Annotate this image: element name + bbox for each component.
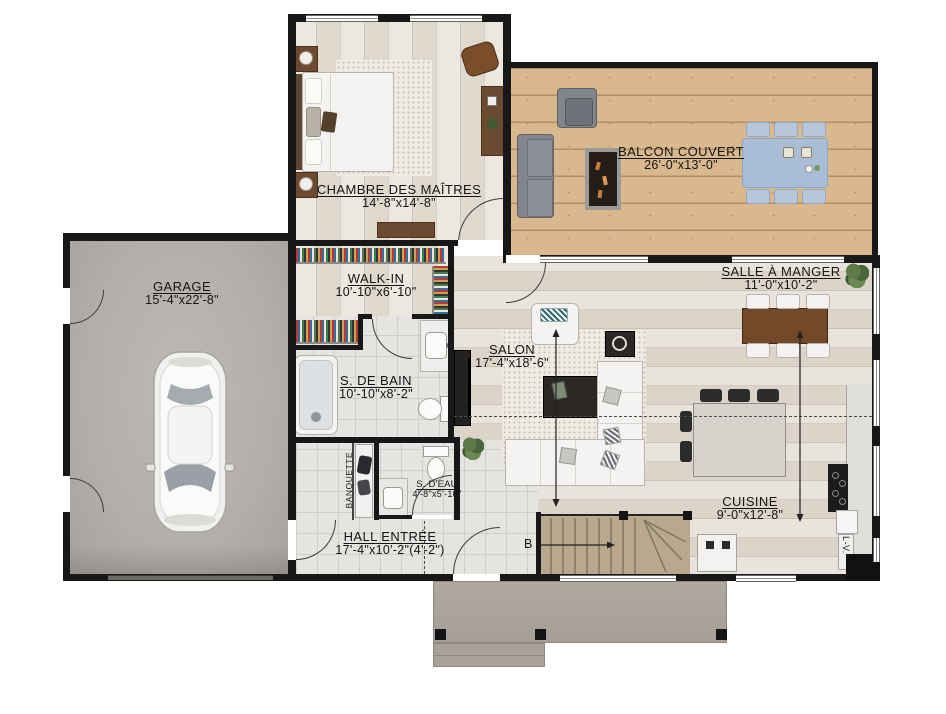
patio-chair <box>774 189 798 204</box>
dining-chair <box>806 343 830 358</box>
porch-post <box>435 629 446 640</box>
room-name: HALL ENTRÉE <box>335 530 444 544</box>
garage-door <box>108 575 273 580</box>
bed-pillow <box>305 78 322 104</box>
front-door-opening <box>453 574 500 581</box>
door-opening <box>506 255 540 263</box>
flame-icon <box>597 190 602 198</box>
window <box>732 256 844 263</box>
dining-chair <box>746 294 770 309</box>
room-name: SALLE À MANGER <box>721 265 840 279</box>
room-dims: 10'-10"x6'-10" <box>335 286 416 300</box>
room-name: S. DE BAIN <box>339 374 413 388</box>
cabinet-handle-icon <box>722 541 730 549</box>
front-porch <box>433 581 727 643</box>
room-name: CUISINE <box>717 495 784 509</box>
burner-icon <box>832 490 839 497</box>
door-opening <box>288 520 296 560</box>
stair-newel-post <box>683 511 692 520</box>
label-chambre-des-maitres: CHAMBRE DES MAÎTRES 14'-8"x14'-8" <box>317 183 481 211</box>
door-opening <box>63 288 70 324</box>
walkin-closet-rod <box>296 248 446 264</box>
dining-chair <box>746 343 770 358</box>
slope-arrow <box>551 329 561 507</box>
island-stool <box>757 389 779 402</box>
wall <box>500 574 880 581</box>
table-candle-icon <box>783 147 794 158</box>
wall <box>358 314 363 350</box>
door-opening <box>412 515 452 519</box>
room-dims: 9'-0"x12'-8" <box>717 509 784 523</box>
window <box>873 268 880 334</box>
label-banquette: BANQUETTE <box>344 452 354 508</box>
patio-table <box>742 138 828 188</box>
label-walk-in: WALK-IN 10'-10"x6'-10" <box>335 272 416 300</box>
island-stool <box>680 441 692 462</box>
room-name: WALK-IN <box>335 272 416 286</box>
window <box>560 575 676 582</box>
label-salle-de-bain: S. DE BAIN 10'-10"x8'-2" <box>339 374 413 402</box>
dining-chair <box>776 294 800 309</box>
sofa-cushion <box>527 139 553 177</box>
bathtub-drain <box>311 412 321 422</box>
powder-sink <box>383 487 403 509</box>
door-opening <box>458 240 503 246</box>
wall <box>412 314 454 319</box>
nightstand-lamp <box>299 177 313 191</box>
label-hall-entree: HALL ENTRÉE 17'-4"x10'-2"(4'-2") <box>335 530 444 558</box>
room-dims: 17'-4"x10'-2"(4'-2") <box>335 544 444 558</box>
patio-chair <box>746 189 770 204</box>
label-cuisine: CUISINE 9'-0"x12'-8" <box>717 495 784 523</box>
table-candle-icon <box>801 147 812 158</box>
wall <box>448 240 454 443</box>
garage-door-shadow <box>70 545 290 574</box>
window <box>736 575 796 582</box>
desk-plant <box>487 118 498 129</box>
porch-post <box>716 629 727 640</box>
label-dishwasher: L-V. <box>841 536 851 554</box>
island-stool <box>680 411 692 432</box>
bed-throw <box>321 111 338 133</box>
burner-icon <box>839 480 846 487</box>
desk-accessory <box>487 96 497 106</box>
door-opening <box>63 476 70 512</box>
deck-armchair <box>557 88 597 128</box>
bedroom-bench <box>377 222 435 238</box>
bed-pillow <box>305 139 322 165</box>
toilet-bowl <box>418 398 442 420</box>
label-garage: GARAGE 15'-4"x22'-8" <box>145 280 219 308</box>
stairs-direction-arrow <box>537 540 613 550</box>
room-name: CHAMBRE DES MAÎTRES <box>317 183 481 197</box>
wall <box>503 62 878 68</box>
wall <box>288 14 296 241</box>
kitchen-cabinet <box>697 534 737 572</box>
bed-pillow <box>306 107 321 137</box>
window <box>873 446 880 516</box>
stairs-direction-label: B <box>524 537 532 551</box>
patio-chair <box>802 189 826 204</box>
room-dims: 11'-0"x10'-2" <box>721 279 840 293</box>
sofa-pillow <box>603 427 622 446</box>
sofa-cushion <box>527 179 553 217</box>
side-table-decor <box>612 336 627 351</box>
porch-step-line <box>433 655 545 656</box>
tv-screen <box>468 358 471 418</box>
flame-icon <box>602 176 608 186</box>
walkin-closet-rod <box>296 320 358 344</box>
wall <box>503 14 511 263</box>
wall <box>288 345 362 350</box>
porch-post <box>535 629 546 640</box>
patio-chair <box>802 122 826 137</box>
bathroom-sink <box>425 332 447 359</box>
room-name: GARAGE <box>145 280 219 294</box>
room-dims: 26'-0"x13'-0" <box>618 159 744 173</box>
armchair-pillow <box>540 308 568 322</box>
wall <box>63 233 70 581</box>
powder-toilet-tank <box>423 446 449 457</box>
window <box>540 256 648 263</box>
island-stool <box>700 389 722 402</box>
plant-icon <box>462 436 484 460</box>
burner-icon <box>832 472 839 479</box>
label-salle-a-manger: SALLE À MANGER 11'-0"x10'-2" <box>721 265 840 293</box>
nightstand-lamp <box>299 51 313 65</box>
stairs-direction: B <box>524 535 614 551</box>
banquette-coat <box>357 479 371 496</box>
slope-arrow <box>795 330 805 522</box>
window <box>410 15 482 22</box>
window <box>873 538 880 562</box>
flame-icon <box>595 162 601 171</box>
wall <box>296 574 453 581</box>
island-stool <box>728 389 750 402</box>
wall <box>872 62 878 259</box>
stair-newel-post <box>619 511 628 520</box>
floor-plan: { "rooms": { "garage": {"name": "GARAGE"… <box>0 0 946 714</box>
room-dims: 14'-8"x14'-8" <box>317 197 481 211</box>
window <box>873 360 880 426</box>
room-dims: 10'-10"x8'-2" <box>339 388 413 402</box>
label-salon: SALON 17'-4"x18'-6" <box>475 343 549 371</box>
window <box>306 15 378 22</box>
burner-icon <box>839 498 846 505</box>
room-name: SALON <box>475 343 549 357</box>
dining-table <box>742 308 828 344</box>
deck-sofa <box>517 134 554 218</box>
room-dims: 17'-4"x18'-6" <box>475 357 549 371</box>
plant-icon <box>845 262 869 288</box>
dining-chair <box>806 294 830 309</box>
range <box>828 464 848 512</box>
wall <box>378 515 412 519</box>
sofa-pillow <box>559 447 577 465</box>
patio-chair <box>774 122 798 137</box>
walkin-closet-rod <box>432 266 448 316</box>
dashed-ceiling-line <box>454 416 872 417</box>
cabinet-handle-icon <box>706 541 714 549</box>
room-dims: 4'-8"x5'-10" <box>413 490 462 500</box>
label-balcon-couvert: BALCON COUVERT 26'-0"x13'-0" <box>618 145 744 173</box>
fire-table <box>585 148 621 210</box>
room-dims: 15'-4"x22'-8" <box>145 294 219 308</box>
patio-chair <box>746 122 770 137</box>
label-salle-deau: S. D'EAU 4'-8"x5'-10" <box>413 480 462 500</box>
room-name: BALCON COUVERT <box>618 145 744 159</box>
wall <box>63 233 296 241</box>
wall <box>288 240 458 246</box>
wall <box>288 233 296 520</box>
armchair-cushion <box>565 98 593 126</box>
wall <box>374 443 379 520</box>
kitchen-island <box>693 403 786 477</box>
table-decor-icon <box>805 165 813 173</box>
car <box>138 346 242 538</box>
table-decor-icon <box>814 165 820 171</box>
upper-cabinet <box>836 510 858 534</box>
